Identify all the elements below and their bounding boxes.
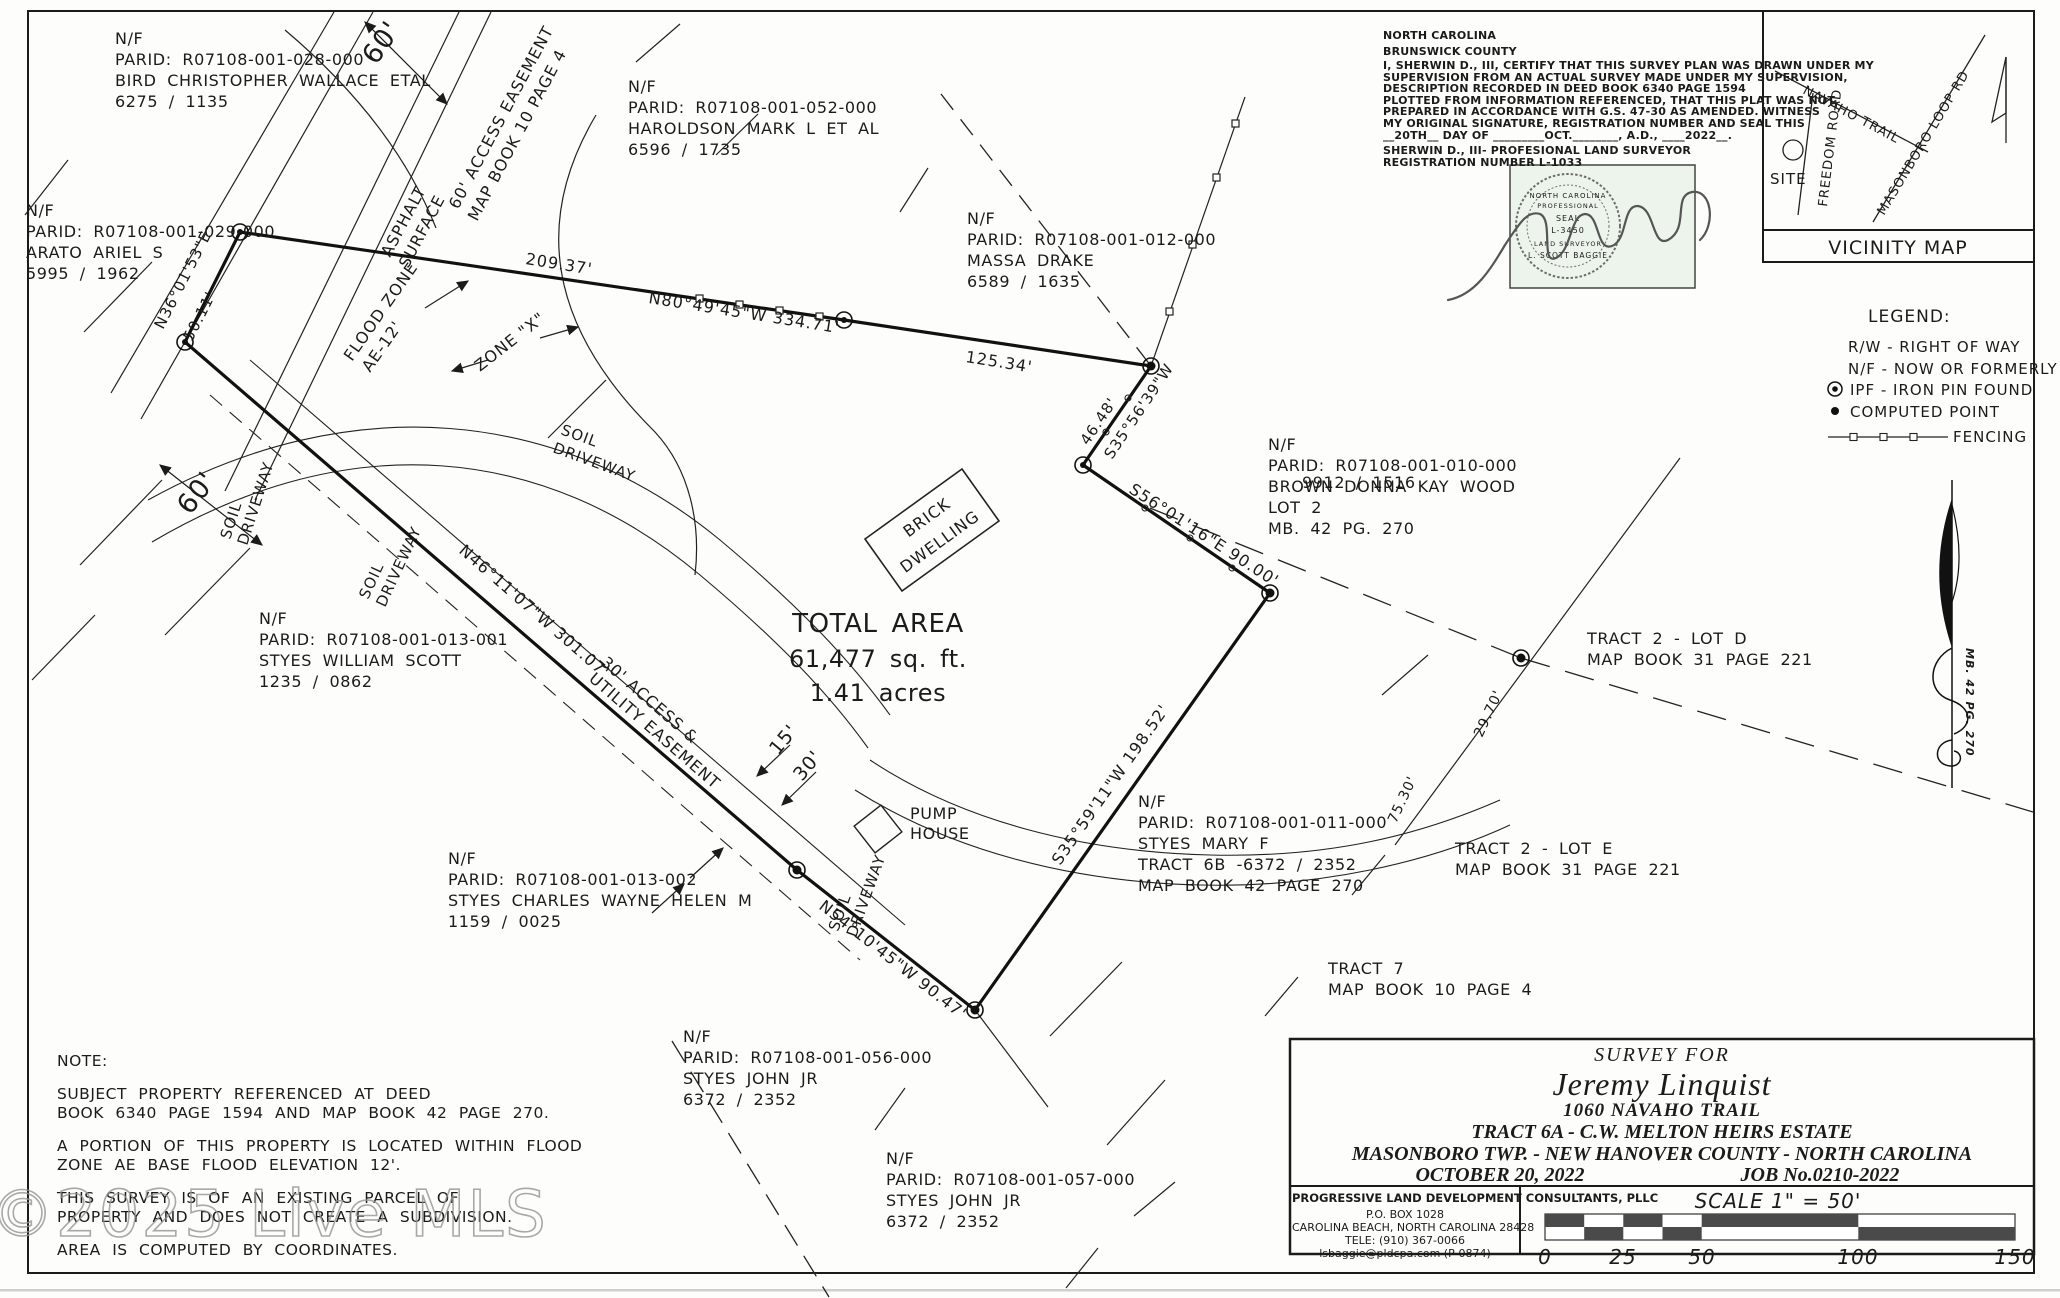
note-line: A PORTION OF THIS PROPERTY IS LOCATED WI… — [57, 1137, 582, 1156]
seal-line-4: L-3450 — [1551, 226, 1585, 235]
legend-title: LEGEND: — [1868, 307, 1951, 327]
scale-tick-25: 25 — [1609, 1245, 1636, 1269]
firm-address2: CAROLINA BEACH, NORTH CAROLINA 28428 — [1292, 1221, 1518, 1234]
dim-60-left: 60' — [171, 466, 223, 520]
flood-zone-arrow — [425, 281, 468, 308]
scale-title: SCALE 1" = 50' — [1695, 1189, 1862, 1213]
notes-title: NOTE: — [57, 1052, 582, 1071]
legend-ipf-symbol — [1828, 382, 1842, 396]
mls-watermark: ©2025 Live MLS — [0, 1178, 548, 1252]
scale-tick-50: 50 — [1688, 1245, 1715, 1269]
scale-tick-150: 150 — [1994, 1245, 2035, 1269]
bearing-n80: N80°49'45"W 334.71' — [647, 288, 841, 337]
north-arrow-ref-label: MB. 42 PG. 270 — [1963, 648, 1976, 757]
legend-fencing: FENCING — [1953, 428, 2027, 446]
cert-line: I, SHERWIN D., III, CERTIFY THAT THIS SU… — [1383, 60, 1874, 72]
seal-line-1: NORTH CAROLINA — [1530, 192, 1607, 200]
scale-tick-0: 0 — [1538, 1245, 1552, 1269]
title-address: 1060 NAVAHO TRAIL — [1290, 1100, 2034, 1122]
firm-info: PROGRESSIVE LAND DEVELOPMENT CONSULTANTS… — [1292, 1192, 1518, 1260]
bearing-s56: S56°01'16"E 90.00' — [1126, 479, 1283, 590]
legend: LEGEND: R/W - RIGHT OF WAY N/F - NOW OR … — [1828, 307, 2058, 446]
certification-text: NORTH CAROLINA BRUNSWICK COUNTY I, SHERW… — [1383, 28, 1874, 168]
title-tract: TRACT 6A - C.W. MELTON HEIRS ESTATE — [1290, 1121, 2034, 1144]
dist-125: 125.34' — [964, 347, 1034, 376]
firm-email: lsbaggie@pldcpa.com (P-0874) — [1292, 1247, 1518, 1260]
cert-line: SHERWIN D., III- PROFESIONAL LAND SURVEY… — [1383, 145, 1874, 157]
scale-tick-100: 100 — [1837, 1245, 1878, 1269]
legend-nf: N/F - NOW OR FORMERLY — [1848, 360, 2058, 378]
cert-line: REGISTRATION NUMBER L-1033 — [1383, 157, 1874, 169]
dim-15: 15' — [765, 720, 803, 759]
surveyor-seal: NORTH CAROLINA PROFESSIONAL SEAL L-3450 … — [1448, 165, 1710, 300]
title-survey-for: SURVEY FOR — [1290, 1044, 2034, 1067]
note-line: SUBJECT PROPERTY REFERENCED AT DEED — [57, 1085, 582, 1104]
seal-line-2: PROFESSIONAL — [1537, 202, 1599, 210]
site-label: SITE — [1770, 170, 1807, 188]
dim-60-top: 60' — [356, 16, 407, 70]
cert-line: __20TH__ DAY OF _________OCT.________, A… — [1383, 130, 1874, 142]
easement30-label-2: UTILITY EASEMENT — [585, 669, 724, 793]
dist-50-11: 50.11' — [180, 288, 220, 343]
legend-cp: COMPUTED POINT — [1850, 403, 2000, 421]
dim-30: 30' — [789, 746, 827, 785]
vicinity-north-flag — [1992, 57, 2006, 122]
north-arrow: MB. 42 PG. 270 — [1933, 480, 1976, 788]
vicinity-map-title: VICINITY MAP — [1828, 237, 1967, 259]
firm-name: PROGRESSIVE LAND DEVELOPMENT CONSULTANTS… — [1292, 1192, 1518, 1205]
seal-line-6: L. SCOTT BAGGIE — [1528, 251, 1608, 260]
firm-phone: TELE: (910) 367-0066 — [1292, 1234, 1518, 1247]
lot-division-line — [975, 458, 1680, 1107]
zone-x-label: ZONE "X" — [471, 308, 549, 375]
access-road-lines — [111, 12, 491, 500]
title-job-number: JOB No.0210-2022 — [1660, 1164, 1980, 1187]
cert-line: NORTH CAROLINA — [1383, 28, 1874, 44]
note-line: ZONE AE BASE FLOOD ELEVATION 12'. — [57, 1156, 582, 1175]
title-date: OCTOBER 20, 2022 — [1340, 1164, 1660, 1187]
brick-dwelling-outline — [865, 469, 999, 591]
title-client-name: Jeremy Linquist — [1290, 1066, 2034, 1103]
legend-ipf: IPF - IRON PIN FOUND — [1850, 381, 2033, 399]
bearing-labels: 209.37' N80°49'45"W 334.71' 125.34' 60' … — [151, 16, 1507, 1024]
title-township: MASONBORO TWP. - NEW HANOVER COUNTY - NO… — [1290, 1143, 2034, 1166]
dist-29-70: 29.70' — [1471, 688, 1507, 740]
bottom-artifact-line — [0, 1289, 2060, 1292]
note-line: BOOK 6340 PAGE 1594 AND MAP BOOK 42 PAGE… — [57, 1104, 582, 1123]
bearing-s35-59: S35°59'11"W 198.52' — [1048, 701, 1173, 869]
legend-fence-symbol — [1828, 434, 1948, 441]
bearing-n46: N46°11'07"W 301.07' — [455, 541, 613, 682]
cert-line: BRUNSWICK COUNTY — [1383, 44, 1874, 60]
legend-rw: R/W - RIGHT OF WAY — [1848, 338, 2020, 356]
soil-driveway-curves — [148, 427, 1510, 885]
cert-line: MY ORIGINAL SIGNATURE, REGISTRATION NUMB… — [1383, 118, 1874, 130]
firm-address1: P.O. BOX 1028 — [1292, 1208, 1518, 1221]
survey-plat-sheet: 209.37' N80°49'45"W 334.71' 125.34' 60' … — [0, 0, 2060, 1298]
legend-computed-symbol — [1831, 407, 1839, 415]
